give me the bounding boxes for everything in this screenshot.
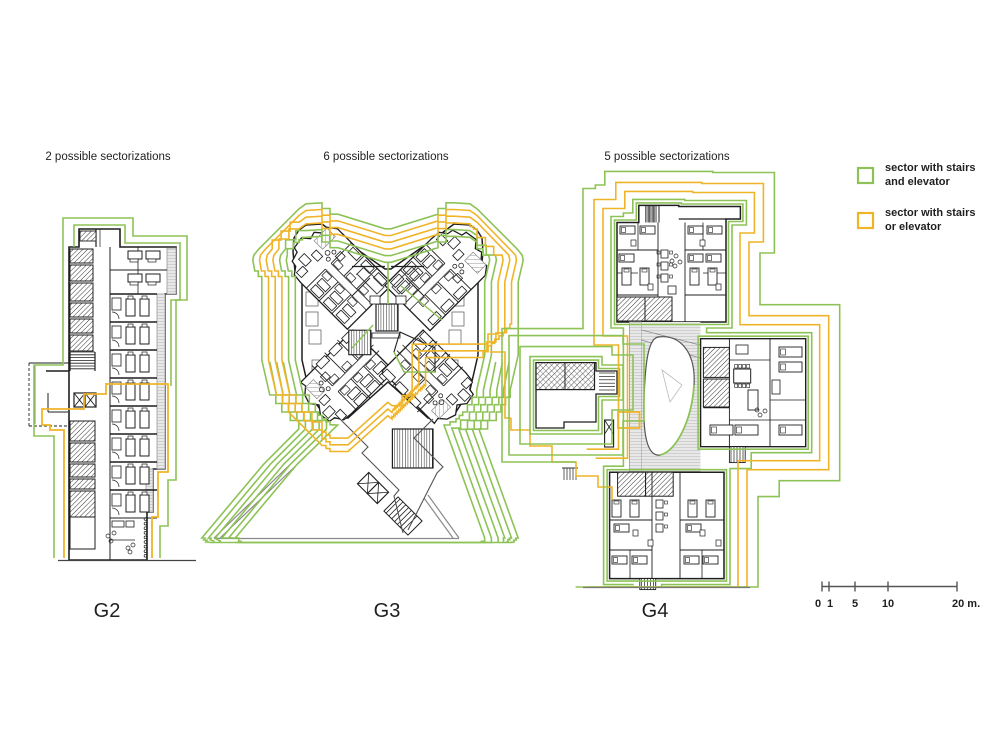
svg-text:and elevator: and elevator: [885, 176, 951, 188]
svg-text:5: 5: [852, 598, 858, 610]
svg-text:G2: G2: [94, 600, 121, 622]
svg-text:sector with stairs: sector with stairs: [885, 162, 975, 174]
svg-text:or elevator: or elevator: [885, 221, 942, 233]
svg-text:0: 0: [815, 598, 821, 610]
svg-text:G4: G4: [642, 600, 669, 622]
svg-text:10: 10: [882, 598, 894, 610]
svg-text:1: 1: [827, 598, 833, 610]
svg-text:6 possible sectorizations: 6 possible sectorizations: [323, 151, 449, 163]
svg-text:5 possible sectorizations: 5 possible sectorizations: [604, 151, 730, 163]
svg-text:sector with stairs: sector with stairs: [885, 207, 975, 219]
svg-text:G3: G3: [374, 600, 401, 622]
svg-text:20 m.: 20 m.: [952, 598, 980, 610]
svg-text:2 possible sectorizations: 2 possible sectorizations: [45, 151, 171, 163]
